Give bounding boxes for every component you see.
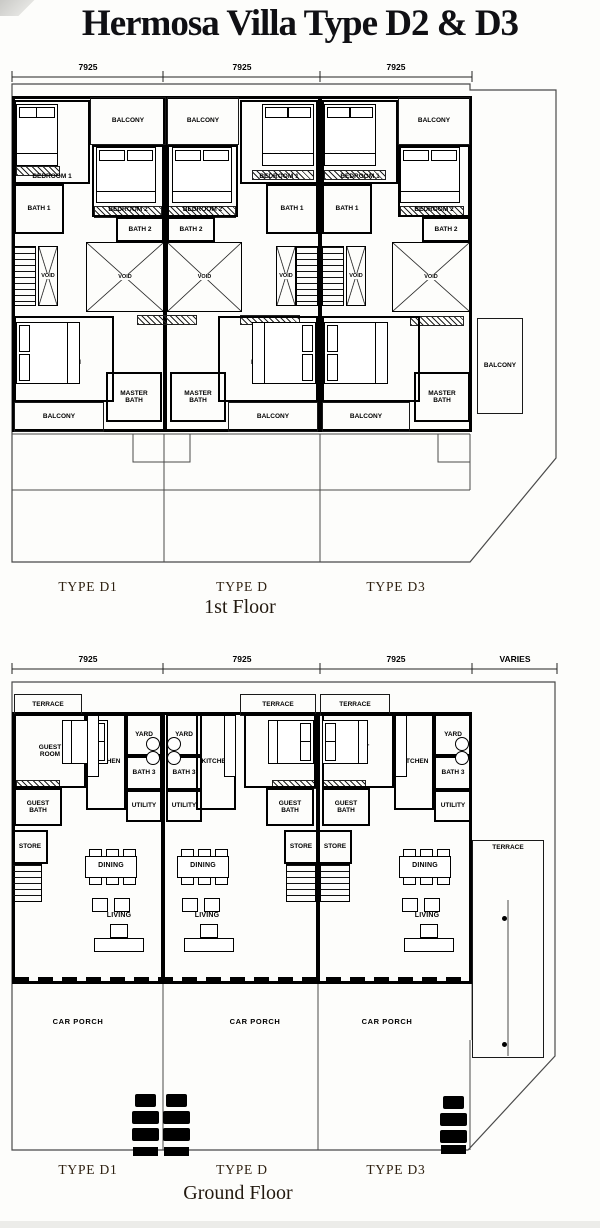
- first-floor-bed-4: [324, 104, 376, 166]
- first-floor-room-balcony: BALCONY: [14, 402, 104, 432]
- first-floor-type-label-1: TYPE D: [216, 579, 268, 595]
- room-utility-label: UTILITY: [172, 802, 197, 809]
- ground-floor-gate-17: [163, 1094, 190, 1156]
- room-dining-label: DINING: [190, 862, 216, 870]
- first-floor-type-label-0: TYPE D1: [58, 579, 117, 595]
- ground-floor-circles-6: [146, 737, 160, 765]
- room-store-label: STORE: [19, 843, 41, 850]
- first-floor-room-balcony: BALCONY: [90, 97, 166, 145]
- room-store-label: STORE: [324, 843, 346, 850]
- ground-floor-room-car-porch: CAR PORCH: [48, 1016, 108, 1028]
- ground-floor-counter-5: [395, 715, 407, 777]
- ground-floor-room-guest-bath: GUEST BATH: [322, 788, 370, 826]
- first-floor-room-balcony: BALCONY: [398, 97, 470, 145]
- first-floor-room-master-bath: MASTER BATH: [170, 372, 226, 422]
- first-floor-room-balcony: BALCONY: [167, 97, 239, 145]
- room-balcony-label: BALCONY: [112, 117, 144, 124]
- room-bath-1-label: BATH 1: [281, 205, 304, 212]
- first-floor-bed-0: [16, 104, 58, 166]
- room-dining-label: DINING: [98, 862, 124, 870]
- ground-floor-room-store: STORE: [12, 830, 48, 864]
- ground-floor-room-living: LIVING: [187, 911, 227, 921]
- first-floor-bed-5: [400, 147, 460, 203]
- first-floor-dimension-label: 7925: [387, 62, 406, 72]
- ground-floor-dimension-label: 7925: [233, 654, 252, 664]
- ground-floor-room-terrace: TERRACE: [240, 694, 316, 716]
- first-floor-hatch-6: [137, 315, 197, 325]
- first-floor-room-bath-2: BATH 2: [167, 217, 215, 242]
- ground-floor-room-store: STORE: [318, 830, 352, 864]
- room-terrace-label: TERRACE: [492, 841, 523, 851]
- first-floor-room-void: VOID: [167, 242, 242, 312]
- room-bath-2-label: BATH 2: [129, 226, 152, 233]
- room-store-label: STORE: [290, 843, 312, 850]
- first-floor-site-line-1: [133, 434, 190, 462]
- first-floor-room-bath-1: BATH 1: [322, 184, 372, 234]
- ground-floor-gate-16: [132, 1094, 159, 1156]
- ground-floor-bed-0: [62, 720, 108, 764]
- first-floor-room-master-bath: MASTER BATH: [106, 372, 162, 422]
- first-floor-room-void: VOID: [392, 242, 470, 312]
- room-balcony-label: BALCONY: [43, 413, 75, 420]
- ground-floor-room-guest-bath: GUEST BATH: [14, 788, 62, 826]
- ground-floor-room-utility: UTILITY: [166, 790, 202, 822]
- ground-floor-room-car-porch: CAR PORCH: [357, 1016, 417, 1028]
- first-floor-room-master-bath: MASTER BATH: [414, 372, 470, 422]
- room-void-label: VOID: [423, 274, 438, 280]
- room-balcony-label: BALCONY: [187, 117, 219, 124]
- room-car-porch-label: CAR PORCH: [362, 1018, 413, 1027]
- room-terrace-label: TERRACE: [32, 701, 63, 708]
- room-living-label: LIVING: [107, 912, 132, 920]
- room-guest-bath-label: GUEST BATH: [331, 800, 361, 815]
- ground-floor-dimension-label: VARIES: [499, 654, 530, 664]
- room-bath-3-label: BATH 3: [133, 769, 156, 776]
- room-bath-2-label: BATH 2: [180, 226, 203, 233]
- ground-floor-room-terrace: TERRACE: [14, 694, 82, 716]
- ground-floor-dot-19: [502, 916, 507, 921]
- room-bedroom-1-label: BEDROOM 1: [259, 173, 298, 182]
- room-bedroom-1-label: BEDROOM 1: [32, 173, 71, 182]
- ground-floor-gate-18: [440, 1096, 467, 1154]
- first-floor-staircase: [296, 246, 318, 306]
- ground-floor-sofa-13: [180, 898, 238, 952]
- ground-floor-caption: Ground Floor: [183, 1182, 292, 1205]
- room-utility-label: UTILITY: [441, 802, 466, 809]
- ground-floor-counter-3: [87, 715, 99, 777]
- room-balcony-label: BALCONY: [257, 413, 289, 420]
- room-bath-3-label: BATH 3: [442, 769, 465, 776]
- room-master-bath-label: MASTER BATH: [422, 390, 462, 405]
- first-floor-bed-1: [96, 147, 156, 203]
- ground-floor-room-living: LIVING: [407, 911, 447, 921]
- first-floor-bed-7: [252, 322, 316, 384]
- room-utility-label: UTILITY: [132, 802, 157, 809]
- first-floor-room-bath-1: BATH 1: [266, 184, 318, 234]
- ground-floor-staircase: [12, 864, 42, 902]
- first-floor-room-bath-1: BATH 1: [14, 184, 64, 234]
- room-bath-2-label: BATH 2: [435, 226, 458, 233]
- room-guest-bath-label: GUEST BATH: [23, 800, 53, 815]
- first-floor-room-void: VOID: [346, 246, 366, 306]
- ground-floor-sofa-12: [90, 898, 148, 952]
- first-floor-dimension-label: 7925: [79, 62, 98, 72]
- floor-plan-canvas: Hermosa Villa Type D2 & D3 792579257925B…: [0, 0, 600, 1228]
- room-terrace-label: TERRACE: [262, 701, 293, 708]
- first-floor-room-balcony: BALCONY: [322, 402, 410, 432]
- ground-floor-room-guest-bath: GUEST BATH: [266, 788, 314, 826]
- room-living-label: LIVING: [195, 912, 220, 920]
- first-floor-room-bath-2: BATH 2: [116, 217, 164, 242]
- first-floor-room-balcony: BALCONY: [477, 318, 523, 414]
- ground-floor-sofa-14: [400, 898, 458, 952]
- first-floor-bed-6: [16, 322, 80, 384]
- room-void-label: VOID: [278, 273, 293, 279]
- first-floor-bed-8: [324, 322, 388, 384]
- ground-floor-staircase: [320, 864, 350, 902]
- ground-floor-bed-2: [322, 720, 368, 764]
- ground-floor-type-label-1: TYPE D: [216, 1162, 268, 1178]
- first-floor-room-void: VOID: [276, 246, 296, 306]
- ground-floor-circles-8: [455, 737, 469, 765]
- ground-floor-room-store: STORE: [284, 830, 318, 864]
- first-floor-dimension-label: 7925: [233, 62, 252, 72]
- room-master-bath-label: MASTER BATH: [114, 390, 154, 405]
- ground-floor-room-dining: DINING: [180, 860, 226, 872]
- first-floor-room-void: VOID: [86, 242, 164, 312]
- room-balcony-label: BALCONY: [418, 117, 450, 124]
- room-living-label: LIVING: [415, 912, 440, 920]
- room-balcony-label: BALCONY: [350, 413, 382, 420]
- ground-floor-room-terrace: TERRACE: [472, 840, 544, 1058]
- first-floor-room-void: VOID: [38, 246, 58, 306]
- room-void-label: VOID: [117, 274, 132, 280]
- ground-floor-dot-20: [502, 1042, 507, 1047]
- first-floor-caption: 1st Floor: [204, 596, 276, 619]
- first-floor-bed-3: [262, 104, 314, 166]
- first-floor-site-line-2: [438, 434, 470, 462]
- room-car-porch-label: CAR PORCH: [230, 1018, 281, 1027]
- room-bedroom-2-label: BEDROOM 2: [414, 206, 453, 215]
- first-floor-room-balcony: BALCONY: [228, 402, 318, 432]
- ground-floor-circles-7: [167, 737, 181, 765]
- room-balcony-label: BALCONY: [484, 362, 516, 369]
- ground-floor-type-label-2: TYPE D3: [366, 1162, 425, 1178]
- room-void-label: VOID: [40, 273, 55, 279]
- ground-floor-front-wall-dashes: [14, 977, 464, 982]
- room-master-bath-label: MASTER BATH: [178, 390, 218, 405]
- ground-floor-dimension-label: 7925: [79, 654, 98, 664]
- ground-floor-staircase: [286, 864, 316, 902]
- ground-floor-room-living: LIVING: [99, 911, 139, 921]
- room-void-label: VOID: [197, 274, 212, 280]
- room-bath-3-label: BATH 3: [173, 769, 196, 776]
- room-bedroom-2-label: BEDROOM 2: [183, 206, 222, 215]
- ground-floor-room-utility: UTILITY: [434, 790, 472, 822]
- first-floor-staircase: [14, 246, 36, 306]
- ground-floor-room-car-porch: CAR PORCH: [225, 1016, 285, 1028]
- ground-floor-room-utility: UTILITY: [126, 790, 162, 822]
- ground-floor-type-label-0: TYPE D1: [58, 1162, 117, 1178]
- room-void-label: VOID: [348, 273, 363, 279]
- ground-floor-bed-1: [268, 720, 314, 764]
- ground-floor-dimension-label: 7925: [387, 654, 406, 664]
- first-floor-room-bath-2: BATH 2: [422, 217, 470, 242]
- ground-floor-room-dining: DINING: [402, 860, 448, 872]
- first-floor-type-label-2: TYPE D3: [366, 579, 425, 595]
- ground-floor-counter-4: [224, 715, 236, 777]
- ground-floor-room-dining: DINING: [88, 860, 134, 872]
- room-dining-label: DINING: [412, 862, 438, 870]
- first-floor-bed-2: [172, 147, 232, 203]
- ground-floor-room-terrace: TERRACE: [320, 694, 390, 716]
- room-terrace-label: TERRACE: [339, 701, 370, 708]
- room-guest-bath-label: GUEST BATH: [275, 800, 305, 815]
- room-bath-1-label: BATH 1: [336, 205, 359, 212]
- room-bath-1-label: BATH 1: [28, 205, 51, 212]
- room-bedroom-1-label: BEDROOM 1: [340, 173, 379, 182]
- room-bedroom-2-label: BEDROOM 2: [108, 206, 147, 215]
- room-car-porch-label: CAR PORCH: [53, 1018, 104, 1027]
- first-floor-staircase: [322, 246, 344, 306]
